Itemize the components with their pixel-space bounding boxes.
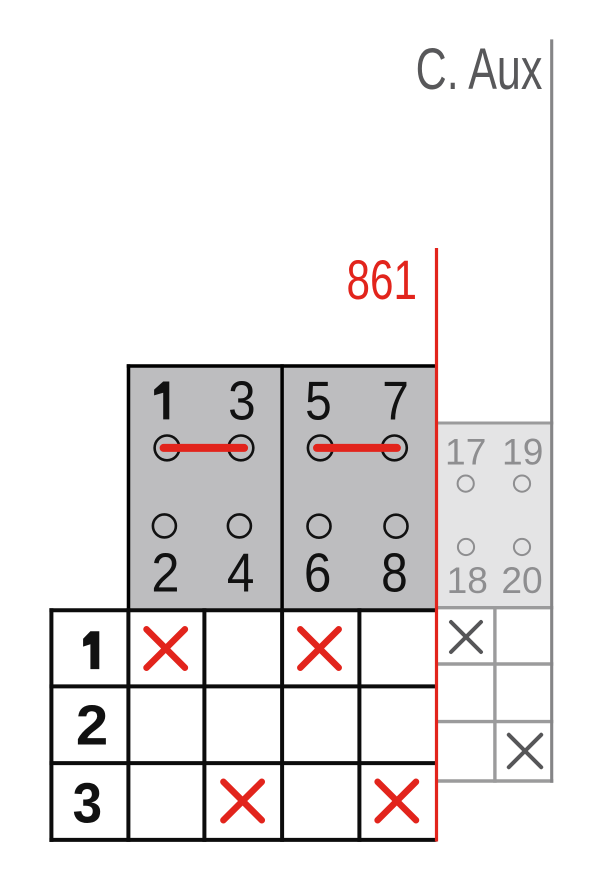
- svg-text:17: 17: [445, 430, 486, 472]
- svg-text:18: 18: [447, 559, 488, 601]
- svg-text:861: 861: [347, 248, 418, 311]
- svg-text:6: 6: [304, 543, 332, 604]
- svg-text:5: 5: [305, 369, 332, 431]
- svg-text:4: 4: [227, 543, 255, 604]
- svg-text:C. Aux: C. Aux: [416, 37, 543, 102]
- svg-text:19: 19: [502, 430, 543, 472]
- svg-text:8: 8: [381, 541, 408, 603]
- svg-text:2: 2: [151, 543, 179, 604]
- svg-text:2: 2: [76, 694, 108, 757]
- svg-text:7: 7: [382, 369, 409, 431]
- svg-text:20: 20: [501, 559, 542, 601]
- svg-text:3: 3: [73, 771, 102, 835]
- svg-text:3: 3: [228, 371, 256, 432]
